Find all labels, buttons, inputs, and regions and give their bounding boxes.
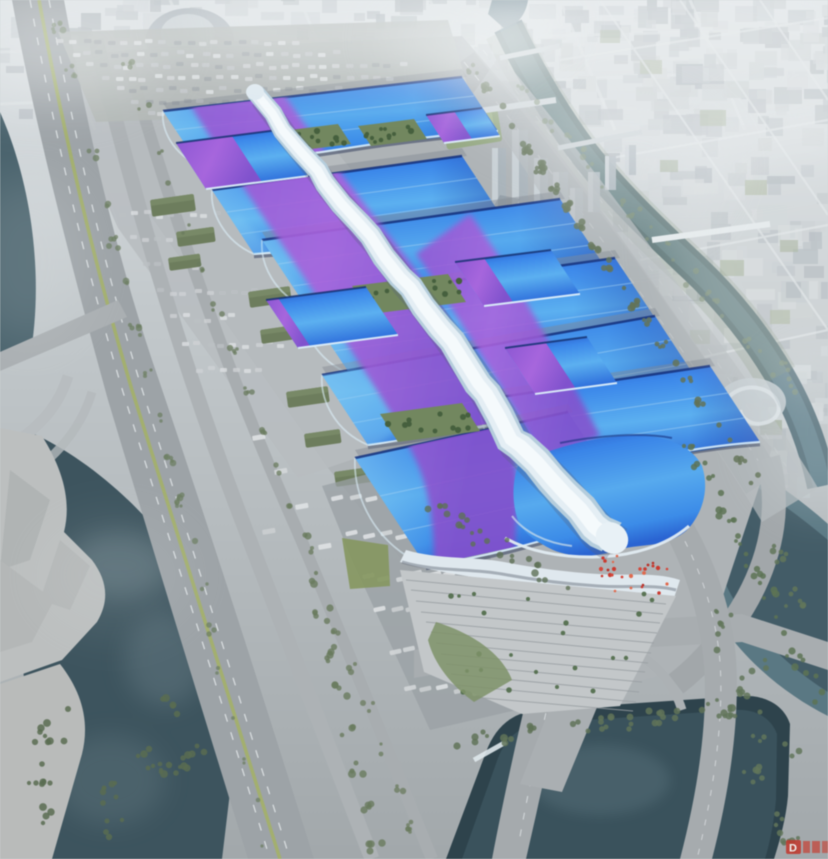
svg-text:D: D <box>789 843 797 855</box>
